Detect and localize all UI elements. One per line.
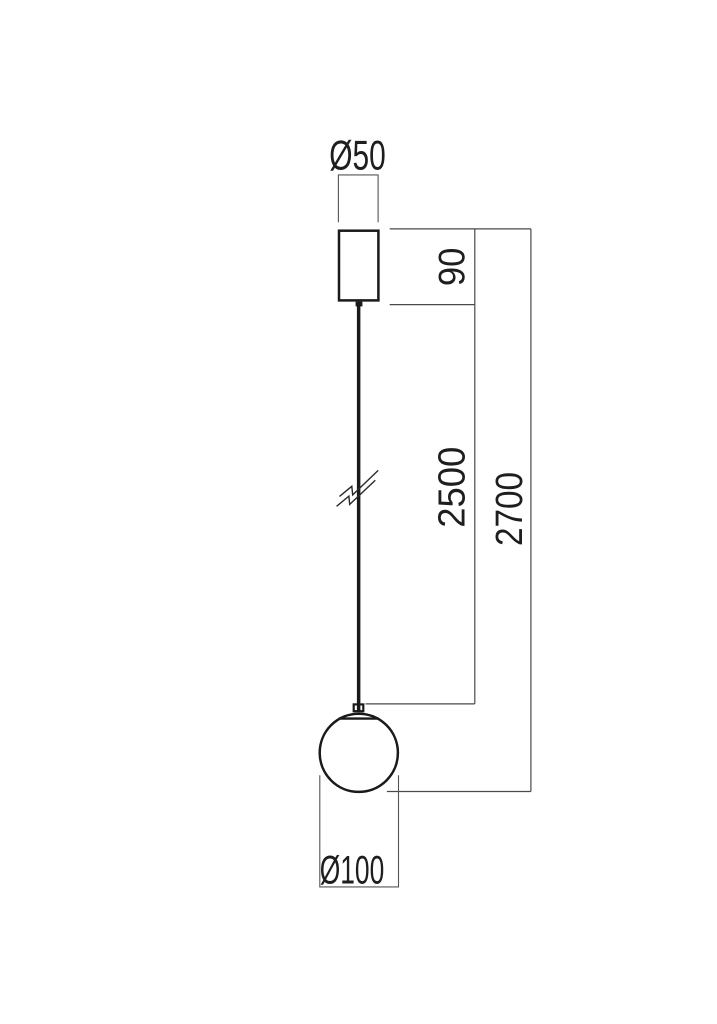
svg-text:Ø100: Ø100 [320,848,385,892]
svg-text:2500: 2500 [430,447,473,528]
svg-text:90: 90 [432,248,473,287]
svg-text:2700: 2700 [489,472,531,546]
svg-text:Ø50: Ø50 [329,132,386,179]
